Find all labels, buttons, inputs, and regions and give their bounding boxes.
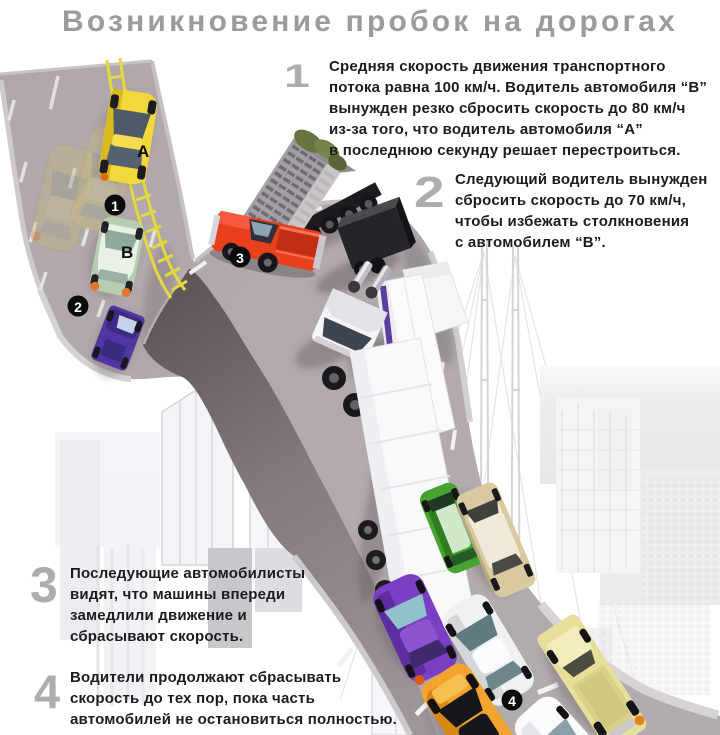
svg-text:3: 3: [236, 250, 244, 266]
svg-text:4: 4: [508, 693, 516, 709]
svg-text:1: 1: [111, 198, 119, 214]
svg-text:2: 2: [74, 299, 82, 315]
svg-text:A: A: [137, 142, 149, 161]
svg-text:B: B: [121, 243, 133, 262]
